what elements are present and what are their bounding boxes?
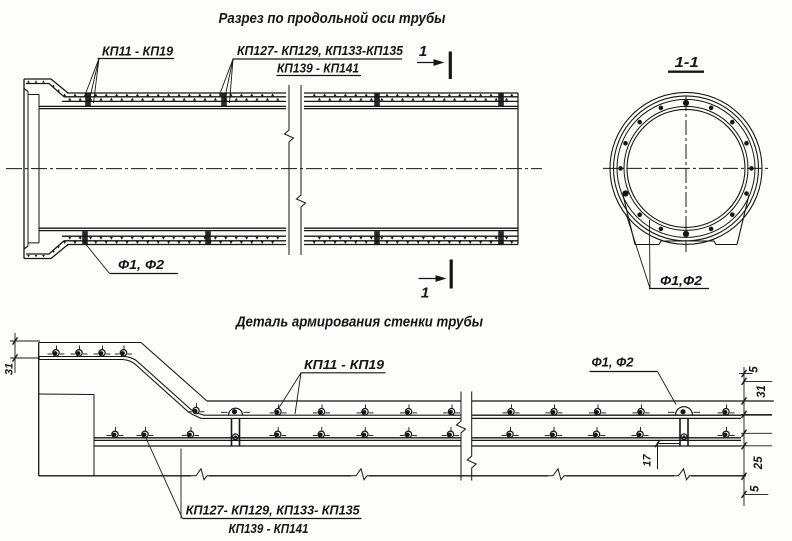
svg-text:КП11 - КП19: КП11 - КП19 — [304, 357, 385, 372]
svg-text:1: 1 — [421, 285, 429, 302]
svg-text:Разрез по продольной оси трубы: Разрез по продольной оси трубы — [219, 10, 446, 27]
svg-text:5: 5 — [748, 366, 760, 373]
svg-text:КП139 - КП141: КП139 - КП141 — [277, 61, 359, 76]
svg-text:31: 31 — [4, 363, 16, 375]
svg-text:КП11 - КП19: КП11 - КП19 — [102, 44, 174, 59]
svg-text:Ф1, Ф2: Ф1, Ф2 — [118, 257, 165, 272]
svg-text:1-1: 1-1 — [675, 54, 699, 71]
svg-text:1: 1 — [419, 43, 427, 60]
svg-text:КП139 - КП141: КП139 - КП141 — [229, 521, 309, 536]
svg-text:КП127- КП129, КП133- КП135: КП127- КП129, КП133- КП135 — [186, 503, 361, 518]
svg-text:31: 31 — [756, 385, 768, 398]
svg-text:Ф1, Ф2: Ф1, Ф2 — [592, 355, 635, 370]
svg-text:5: 5 — [750, 485, 762, 492]
svg-text:КП127- КП129, КП133-КП135: КП127- КП129, КП133-КП135 — [237, 43, 404, 58]
svg-text:17: 17 — [642, 454, 654, 467]
svg-text:Деталь армирования стенки труб: Деталь армирования стенки трубы — [234, 314, 483, 331]
svg-text:Ф1,Ф2: Ф1,Ф2 — [660, 273, 703, 288]
svg-text:25: 25 — [753, 456, 765, 470]
